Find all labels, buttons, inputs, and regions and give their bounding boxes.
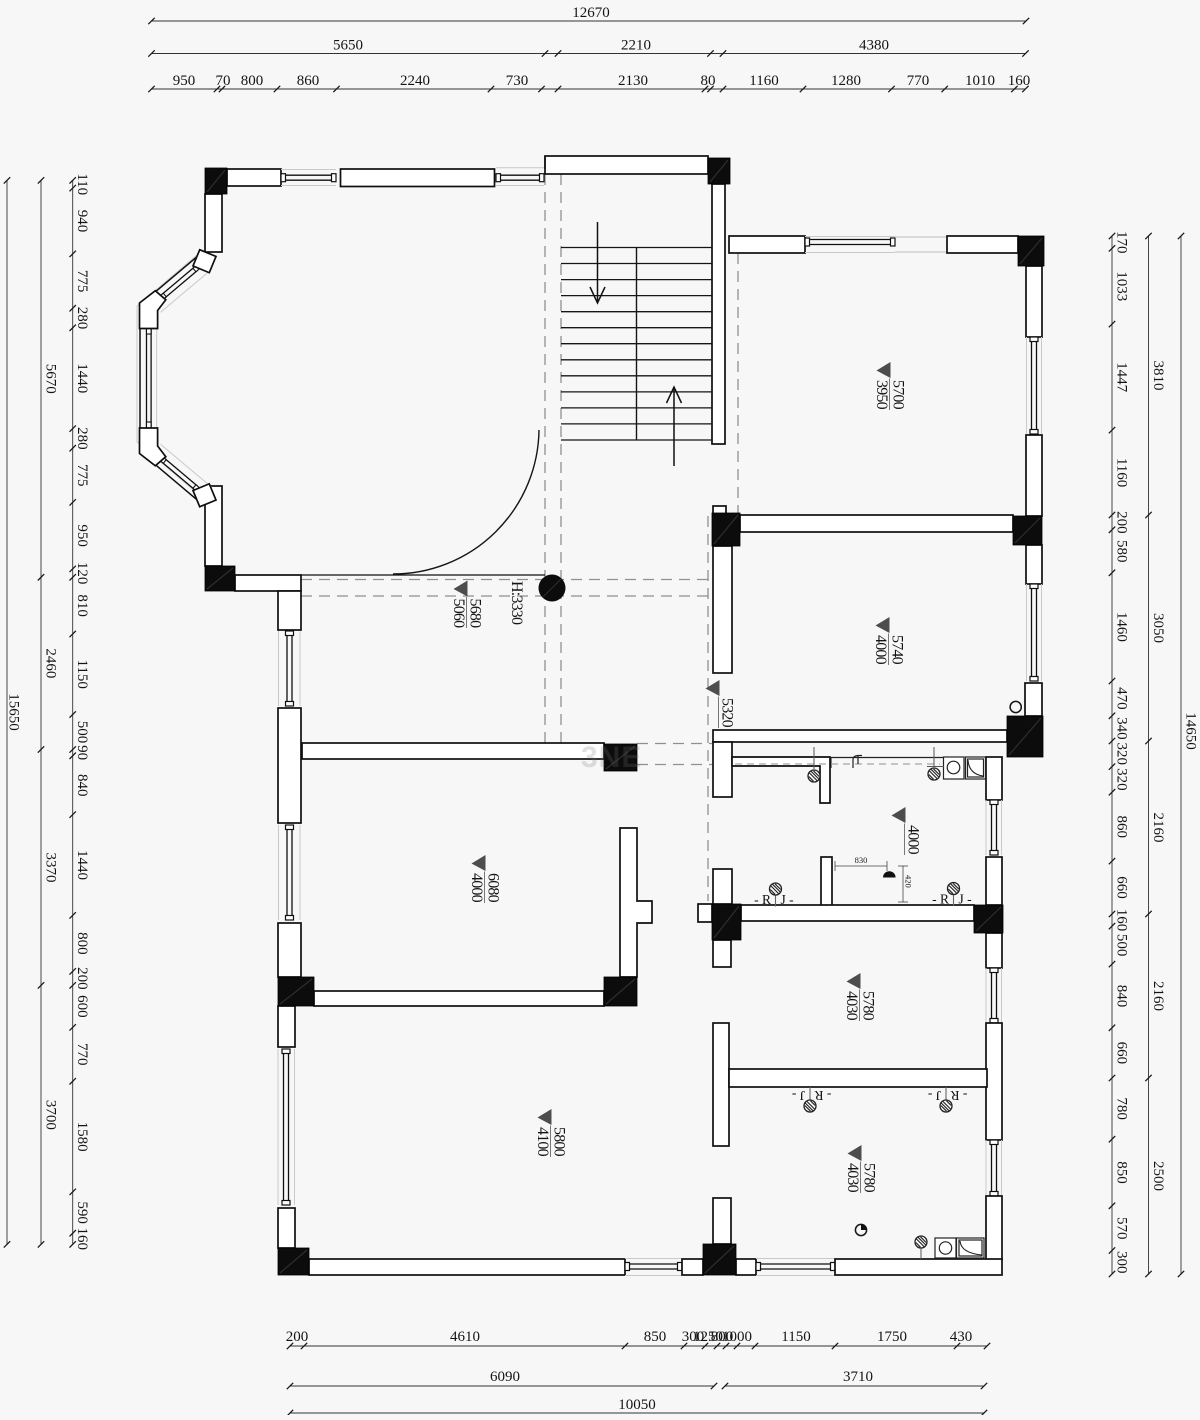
svg-text:1150: 1150 (74, 659, 90, 688)
svg-text:3710: 3710 (843, 1369, 873, 1385)
svg-text:90: 90 (74, 745, 90, 760)
svg-text:775: 775 (74, 270, 90, 293)
svg-text:1000: 1000 (722, 1329, 752, 1345)
svg-text:120: 120 (74, 562, 90, 585)
svg-text:1160: 1160 (749, 73, 778, 89)
svg-text:430: 430 (950, 1329, 973, 1345)
svg-text:5700: 5700 (890, 380, 907, 410)
svg-text:3950: 3950 (873, 380, 890, 410)
svg-text:1440: 1440 (74, 363, 90, 393)
svg-text:2460: 2460 (43, 648, 59, 678)
svg-text:840: 840 (74, 774, 90, 797)
svg-text:3810: 3810 (1150, 361, 1166, 391)
svg-text:470: 470 (1114, 687, 1130, 710)
svg-text:5740: 5740 (889, 635, 906, 665)
svg-text:580: 580 (1114, 540, 1130, 563)
svg-text:570: 570 (1114, 1217, 1130, 1240)
svg-text:6090: 6090 (490, 1369, 520, 1385)
svg-text:730: 730 (506, 73, 529, 89)
svg-text:950: 950 (173, 73, 196, 89)
svg-text:320: 320 (1114, 743, 1130, 766)
svg-text:810: 810 (74, 594, 90, 617)
svg-text:H:3330: H:3330 (508, 581, 525, 625)
svg-text:600: 600 (74, 995, 90, 1018)
svg-text:4000: 4000 (905, 825, 922, 855)
svg-text:2160: 2160 (1150, 813, 1166, 843)
svg-text:200: 200 (286, 1329, 309, 1345)
svg-text:15650: 15650 (6, 693, 22, 731)
svg-text:590: 590 (74, 1201, 90, 1224)
svg-text:5800: 5800 (551, 1127, 568, 1157)
svg-text:860: 860 (297, 73, 320, 89)
svg-text:200: 200 (1114, 511, 1130, 534)
svg-text:5680: 5680 (467, 599, 484, 629)
svg-text:1447: 1447 (1114, 362, 1130, 393)
svg-text:- R: - R (932, 892, 949, 907)
svg-text:- R: - R (815, 1088, 832, 1103)
svg-text:850: 850 (644, 1329, 667, 1345)
svg-text:J -: J - (959, 892, 973, 907)
svg-text:3700: 3700 (43, 1100, 59, 1130)
svg-text:170: 170 (1114, 231, 1130, 254)
svg-text:775: 775 (74, 464, 90, 487)
svg-text:860: 860 (1114, 815, 1130, 838)
svg-text:950: 950 (74, 524, 90, 547)
svg-text:800: 800 (241, 73, 264, 89)
svg-text:300: 300 (1114, 1251, 1130, 1274)
svg-text:1010: 1010 (965, 73, 995, 89)
svg-text:160: 160 (1114, 909, 1130, 932)
svg-text:J -: J - (781, 892, 795, 907)
svg-text:80: 80 (701, 73, 716, 89)
svg-text:- R: - R (951, 1088, 968, 1103)
svg-text:770: 770 (907, 73, 930, 89)
svg-text:3050: 3050 (1150, 613, 1166, 643)
svg-text:5320: 5320 (719, 698, 736, 728)
svg-text:4380: 4380 (859, 38, 889, 54)
svg-text:1280: 1280 (831, 73, 861, 89)
svg-text:2160: 2160 (1150, 981, 1166, 1011)
svg-text:1750: 1750 (877, 1329, 907, 1345)
svg-text:4030: 4030 (843, 991, 860, 1021)
svg-text:2210: 2210 (621, 38, 651, 54)
svg-text:830: 830 (855, 855, 868, 865)
svg-text:- R: - R (754, 892, 771, 907)
svg-text:2130: 2130 (618, 73, 648, 89)
svg-text:840: 840 (1114, 985, 1130, 1008)
svg-text:3370: 3370 (43, 853, 59, 883)
svg-text:2500: 2500 (1150, 1161, 1166, 1191)
svg-text:940: 940 (74, 210, 90, 233)
svg-text:4030: 4030 (844, 1163, 861, 1193)
svg-text:850: 850 (1114, 1161, 1130, 1184)
svg-text:5780: 5780 (860, 991, 877, 1021)
svg-text:800: 800 (74, 932, 90, 955)
svg-text:1033: 1033 (1114, 271, 1130, 301)
svg-text:5060: 5060 (450, 599, 467, 629)
svg-text:4000: 4000 (872, 635, 889, 665)
svg-text:500: 500 (1114, 934, 1130, 957)
svg-text:110: 110 (74, 173, 90, 195)
svg-text:70: 70 (216, 73, 231, 89)
svg-text:6080: 6080 (485, 873, 502, 903)
svg-text:1150: 1150 (781, 1329, 810, 1345)
svg-text:J -: J - (927, 1088, 941, 1103)
svg-text:10050: 10050 (618, 1397, 656, 1413)
svg-text:200: 200 (74, 967, 90, 990)
svg-text:12670: 12670 (572, 5, 610, 21)
svg-text:660: 660 (1114, 1042, 1130, 1065)
svg-text:1580: 1580 (74, 1122, 90, 1152)
svg-text:4100: 4100 (534, 1127, 551, 1157)
svg-text:1460: 1460 (1114, 612, 1130, 642)
svg-text:4610: 4610 (450, 1329, 480, 1345)
svg-text:320: 320 (1114, 768, 1130, 791)
svg-text:5780: 5780 (861, 1163, 878, 1193)
svg-text:5650: 5650 (333, 38, 363, 54)
svg-text:780: 780 (1114, 1097, 1130, 1120)
svg-text:3NE: 3NE (581, 741, 642, 774)
svg-text:1160: 1160 (1114, 458, 1130, 487)
svg-text:280: 280 (74, 427, 90, 450)
svg-text:4000: 4000 (468, 873, 485, 903)
svg-text:770: 770 (74, 1043, 90, 1066)
svg-text:660: 660 (1114, 876, 1130, 899)
svg-text:280: 280 (74, 307, 90, 330)
svg-text:J -: J - (791, 1088, 805, 1103)
svg-text:2240: 2240 (400, 73, 430, 89)
svg-text:5670: 5670 (43, 364, 59, 394)
svg-text:160: 160 (1008, 73, 1031, 89)
svg-text:420: 420 (904, 875, 914, 888)
svg-text:14650: 14650 (1183, 712, 1199, 750)
svg-text:500: 500 (74, 721, 90, 744)
svg-text:340: 340 (1114, 717, 1130, 740)
svg-text:160: 160 (74, 1228, 90, 1251)
svg-text:1440: 1440 (74, 850, 90, 880)
